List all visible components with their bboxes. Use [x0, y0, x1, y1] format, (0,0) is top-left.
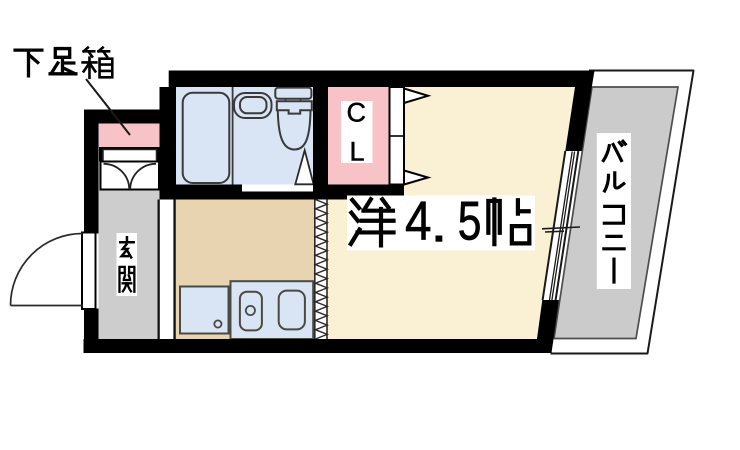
svg-text:4: 4	[405, 190, 432, 252]
svg-text:C: C	[347, 98, 367, 128]
svg-text:5: 5	[458, 190, 482, 252]
svg-text:L: L	[350, 137, 365, 167]
